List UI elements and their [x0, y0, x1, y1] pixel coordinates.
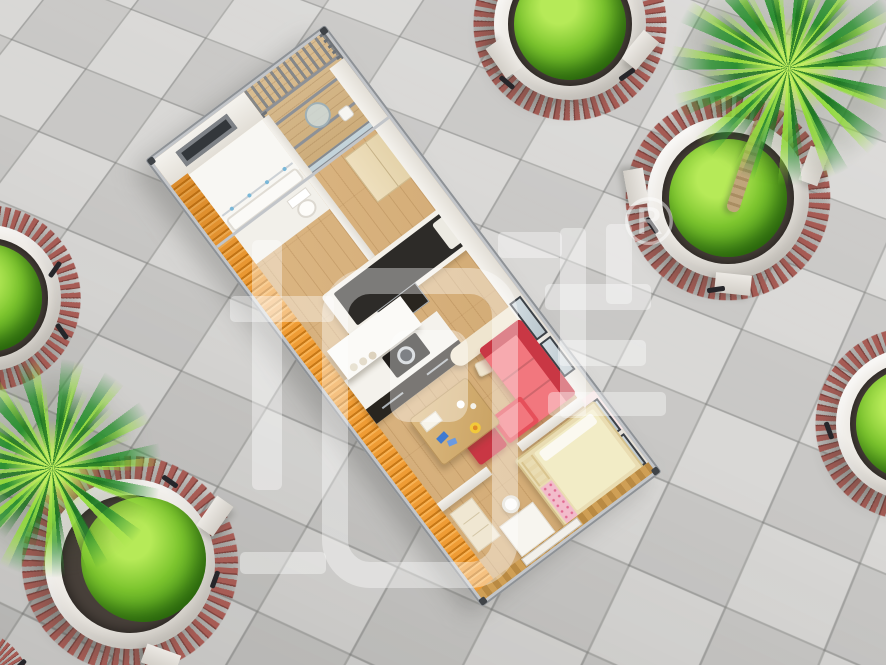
- planter-right-edge: [812, 324, 886, 524]
- scene-3d-render: ®: [0, 0, 886, 665]
- cup: [455, 399, 466, 410]
- book: [447, 438, 458, 447]
- bistro-chair: [337, 104, 355, 122]
- planter-tab: [714, 272, 752, 296]
- flower-bowl: [468, 420, 483, 435]
- tray: [420, 411, 443, 433]
- curved-bench-ring: [0, 628, 32, 665]
- cup: [469, 402, 477, 410]
- bench-fragment-bottom-left-corner: [0, 628, 32, 665]
- registered-trademark-icon: ®: [616, 190, 682, 256]
